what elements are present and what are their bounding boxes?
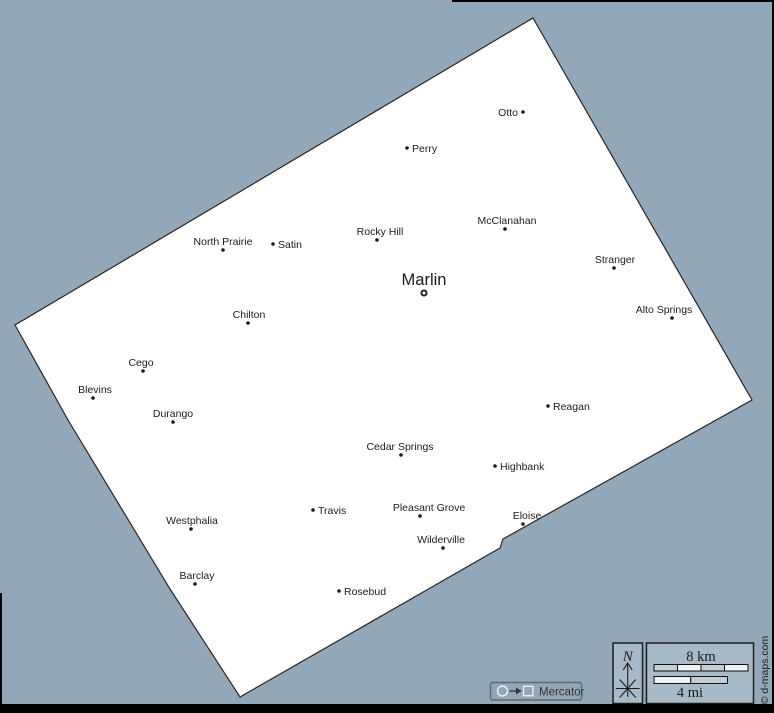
projection-badge: Mercator — [491, 683, 585, 701]
city-label: Travis — [318, 505, 346, 517]
city-label: Cego — [128, 357, 153, 369]
city-label: Wilderville — [417, 534, 465, 546]
city-dot — [521, 110, 525, 114]
city-label: North Prairie — [194, 236, 253, 248]
mi-scale-label: 4 mi — [677, 685, 703, 701]
map-canvas: OttoPerryMcClanahanRocky HillNorth Prair… — [0, 0, 774, 713]
city-dot — [337, 589, 341, 593]
city-label: Barclay — [179, 570, 215, 582]
frame-left-border — [0, 593, 2, 713]
city-dot — [612, 266, 616, 270]
city-dot — [141, 369, 145, 373]
scale-legend: 8 km 4 mi — [647, 643, 754, 704]
city-dot — [271, 242, 275, 246]
city-label: Blevins — [78, 384, 112, 396]
city-dot — [546, 404, 550, 408]
city-dot — [193, 582, 197, 586]
city-label: Satin — [278, 239, 302, 251]
circle-symbol-icon — [498, 686, 508, 696]
city-label: Chilton — [233, 309, 266, 321]
city-label: Perry — [412, 143, 438, 155]
city-dot — [399, 453, 403, 457]
city-dot — [418, 514, 422, 518]
county-seat-label: Marlin — [402, 271, 447, 289]
city-label: Westphalia — [166, 515, 218, 527]
city-label: Alto Springs — [636, 304, 693, 316]
city-label: Cedar Springs — [366, 441, 433, 453]
city-label: Otto — [498, 107, 518, 119]
city-dot — [670, 316, 674, 320]
city-dot — [405, 146, 409, 150]
city-dot — [189, 527, 193, 531]
city-dot — [221, 248, 225, 252]
city-label: Highbank — [500, 461, 545, 473]
frame-bottom-border — [0, 704, 774, 713]
square-symbol-icon — [524, 686, 533, 695]
city-dot — [375, 238, 379, 242]
city-label: Rosebud — [344, 586, 386, 598]
city-dot — [503, 227, 507, 231]
city-dot — [246, 321, 250, 325]
city-label: Eloise — [513, 510, 542, 522]
frame-top-border — [452, 0, 774, 2]
km-scale-bar — [654, 665, 748, 672]
county-map-image: OttoPerryMcClanahanRocky HillNorth Prair… — [0, 0, 774, 713]
city-label: McClanahan — [478, 215, 537, 227]
city-label: Durango — [153, 408, 193, 420]
city-dot — [441, 546, 445, 550]
county-seat-marker — [421, 290, 426, 295]
city-label: Reagan — [553, 401, 590, 413]
city-dot — [311, 508, 315, 512]
city-dot — [91, 396, 95, 400]
city-label: Rocky Hill — [357, 226, 404, 238]
arrow-symbol-icon — [510, 688, 522, 695]
mi-scale-bar — [654, 677, 728, 684]
city-dot — [171, 420, 175, 424]
city-label: Stranger — [595, 254, 636, 266]
compass-legend: N — [613, 643, 643, 704]
city-dot — [521, 522, 525, 526]
projection-label: Mercator — [539, 686, 585, 698]
city-dot — [493, 464, 497, 468]
attribution-text: © d-maps.com — [759, 636, 771, 705]
km-scale-label: 8 km — [686, 649, 716, 665]
city-label: Pleasant Grove — [393, 502, 466, 514]
